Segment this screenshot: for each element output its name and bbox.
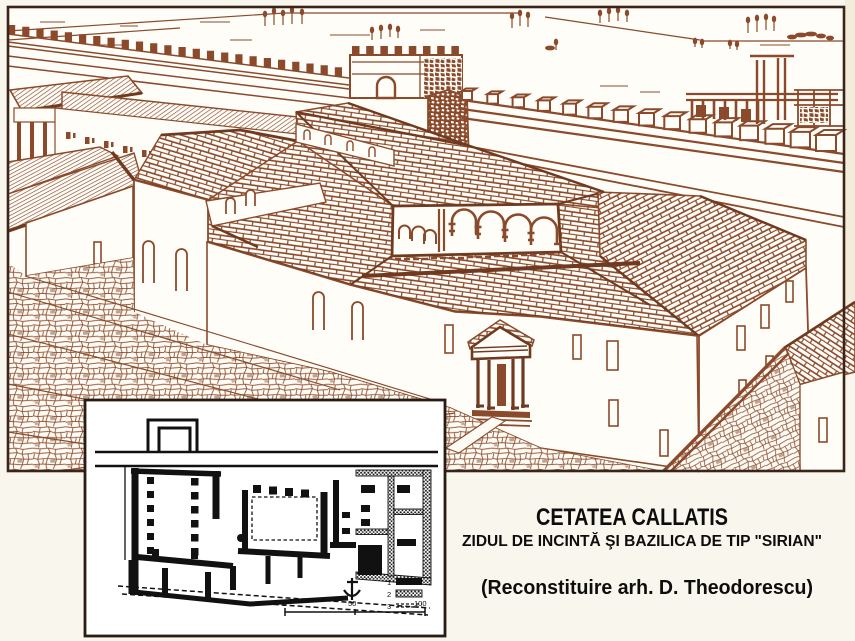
svg-text:100: 100 bbox=[414, 599, 427, 608]
svg-text:1: 1 bbox=[387, 578, 391, 587]
svg-text:50: 50 bbox=[348, 599, 356, 608]
svg-text:3: 3 bbox=[387, 602, 391, 611]
svg-text:0: 0 bbox=[282, 599, 286, 608]
svg-text:(Reconstituire arh. D. Theodor: (Reconstituire arh. D. Theodorescu) bbox=[481, 577, 813, 599]
svg-text:2: 2 bbox=[387, 590, 391, 599]
svg-text:CETATEA CALLATIS: CETATEA CALLATIS bbox=[536, 504, 728, 531]
svg-text:ZIDUL DE INCINTĂ ŞI BAZILICA D: ZIDUL DE INCINTĂ ŞI BAZILICA DE TIP "SIR… bbox=[462, 531, 822, 550]
